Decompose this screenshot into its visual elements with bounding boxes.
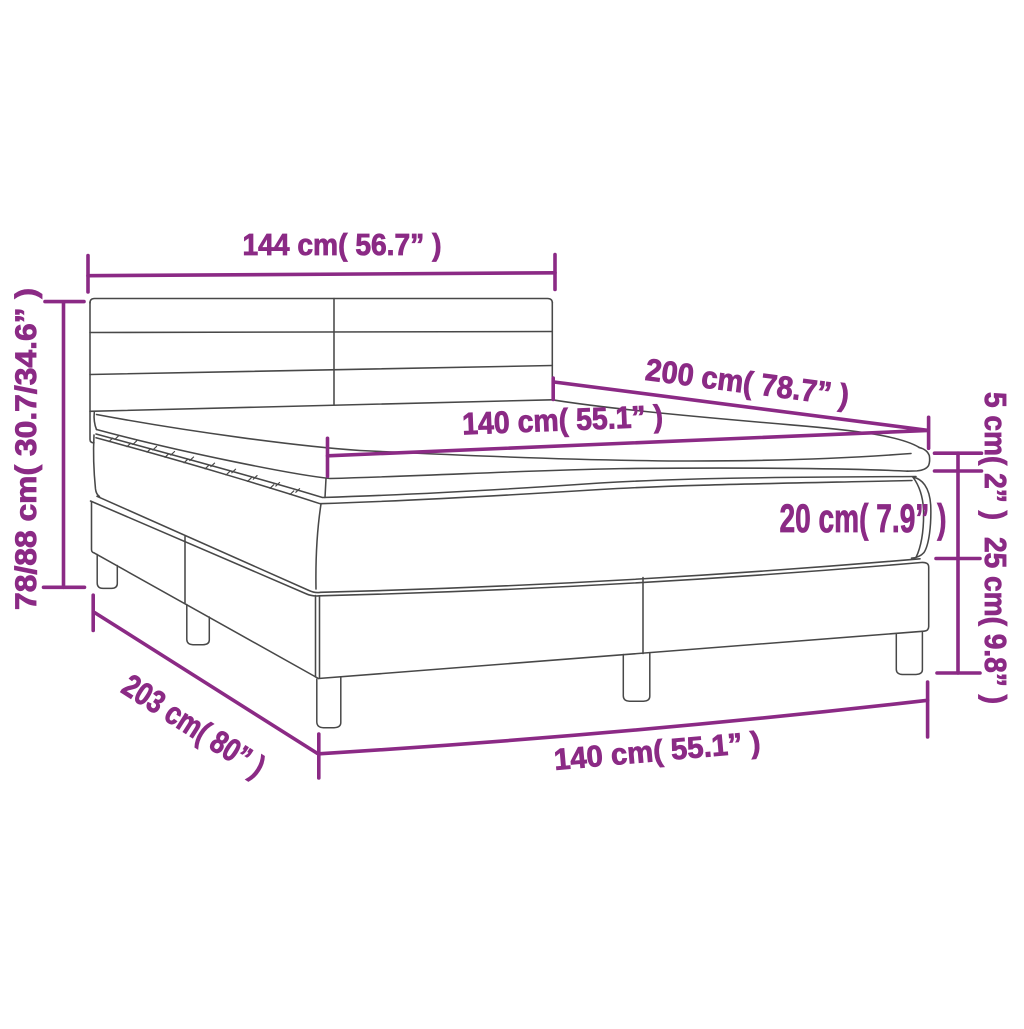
- svg-text:25 cm( 9.8” ): 25 cm( 9.8” ): [978, 537, 1013, 704]
- svg-text:78/88 cm( 30.7/34.6” ): 78/88 cm( 30.7/34.6” ): [10, 288, 43, 610]
- svg-text:5 cm( 2” ): 5 cm( 2” ): [978, 392, 1013, 520]
- svg-text:144 cm( 56.7” ): 144 cm( 56.7” ): [243, 227, 442, 262]
- svg-text:20 cm( 7.9” ): 20 cm( 7.9” ): [780, 497, 947, 541]
